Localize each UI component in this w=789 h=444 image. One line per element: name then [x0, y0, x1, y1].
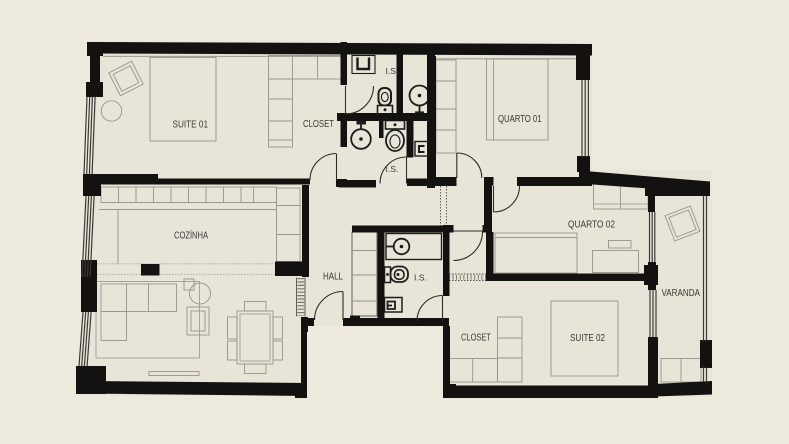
svg-text:SUITE 01: SUITE 01 — [173, 119, 209, 130]
svg-text:COZÍNHA: COZÍNHA — [174, 229, 208, 242]
svg-text:HALL: HALL — [323, 272, 343, 283]
svg-text:I.S.: I.S. — [414, 273, 427, 283]
svg-text:QUARTO 01: QUARTO 01 — [498, 114, 542, 125]
svg-text:CLOSET: CLOSET — [461, 333, 491, 344]
svg-text:CLOSET: CLOSET — [303, 119, 334, 130]
svg-text:VARANDA: VARANDA — [662, 288, 701, 299]
svg-text:I.S.: I.S. — [386, 164, 399, 174]
svg-text:I.S.: I.S. — [386, 66, 399, 76]
svg-text:QUARTO 02: QUARTO 02 — [568, 220, 615, 231]
svg-text:SUITE 02: SUITE 02 — [570, 333, 605, 344]
